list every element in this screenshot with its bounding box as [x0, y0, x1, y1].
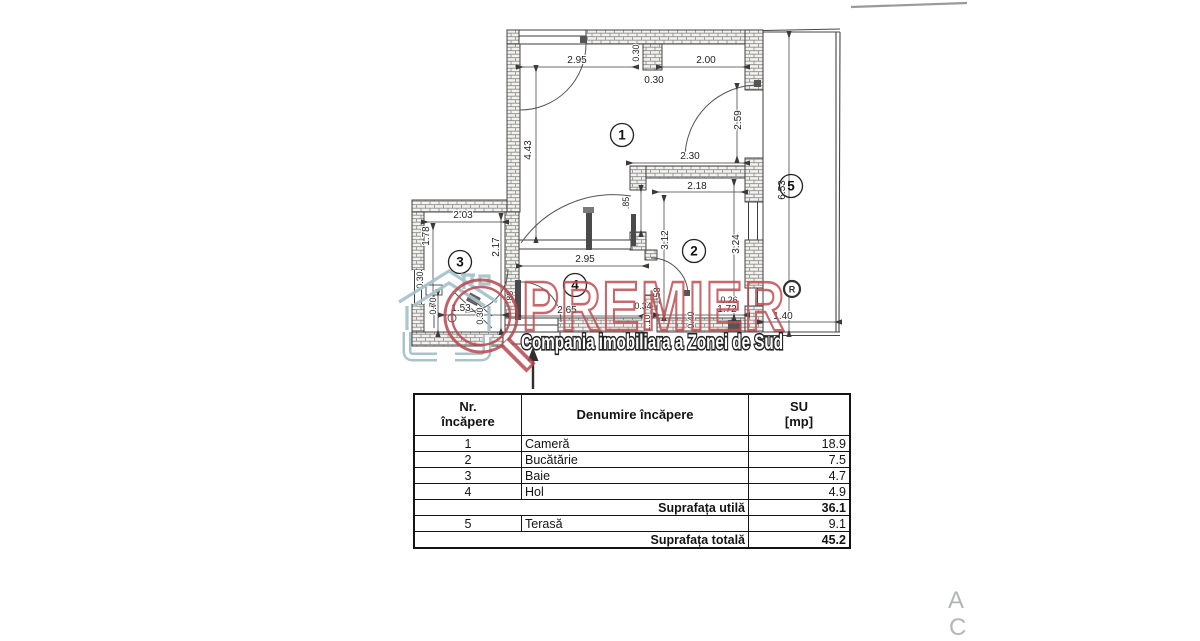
header-nr-line2: încăpere — [418, 415, 518, 430]
cell-nr: 3 — [414, 468, 522, 484]
subtotal-label: Suprafața utilă — [414, 500, 749, 516]
header-nr-line1: Nr. — [418, 400, 518, 415]
room-number-2: 2 — [683, 240, 706, 263]
cell-name: Cameră — [522, 436, 749, 452]
table-row: 1 Cameră 18.9 — [414, 436, 850, 452]
cell-su: 18.9 — [749, 436, 851, 452]
total-label: Suprafața totală — [414, 532, 749, 549]
subtotal-value: 36.1 — [749, 500, 851, 516]
cell-su: 4.7 — [749, 468, 851, 484]
cell-nr: 2 — [414, 452, 522, 468]
dim-label: 0.70 — [428, 297, 438, 314]
table-row: 3 Baie 4.7 — [414, 468, 850, 484]
svg-text:3: 3 — [456, 255, 464, 270]
dim-label: .85 — [621, 197, 631, 209]
dim-label: 0.30 — [644, 75, 664, 86]
dim-label: 0.30 — [631, 44, 641, 61]
dim-label: 2.95 — [575, 254, 595, 265]
cell-name: Bucătărie — [522, 452, 749, 468]
header-nr: Nr. încăpere — [414, 394, 522, 436]
door-arc-room1-hall — [521, 195, 631, 243]
brand-tagline: Compania imobiliara a Zonei de Sud — [521, 330, 783, 354]
scanned-floorplan-page: { "plan": { "rooms": { "r1": "1", "r2": … — [0, 0, 1200, 625]
door-arc-terrace — [685, 85, 758, 158]
faint-corner-letter-c: C — [949, 616, 966, 640]
dim-label: 3.24 — [731, 234, 742, 254]
dim-label: 1.78 — [421, 226, 432, 246]
cell-su: 7.5 — [749, 452, 851, 468]
svg-text:5: 5 — [787, 179, 795, 194]
scan-artifact-line — [851, 3, 967, 7]
table-row: 4 Hol 4.9 — [414, 484, 850, 500]
subtotal-row: Suprafața utilă 36.1 — [414, 500, 850, 516]
area-table: Nr. încăpere Denumire încăpere SU [mp] 1… — [413, 393, 851, 549]
door-arc-room1-top — [520, 44, 586, 110]
cell-name: Hol — [522, 484, 749, 500]
cell-nr: 1 — [414, 436, 522, 452]
header-su-line2: [mp] — [752, 415, 846, 430]
header-su: SU [mp] — [749, 394, 851, 436]
cell-su: 4.9 — [749, 484, 851, 500]
dim-label: 4.43 — [523, 140, 534, 160]
svg-text:R: R — [789, 285, 796, 295]
header-su-line1: SU — [752, 400, 846, 415]
dim-label: 2.95 — [567, 55, 587, 66]
total-row: Suprafața totală 45.2 — [414, 532, 850, 549]
dim-label: 2.03 — [453, 210, 473, 221]
table-row: 2 Bucătărie 7.5 — [414, 452, 850, 468]
total-value: 45.2 — [749, 532, 851, 549]
dim-label: 2.59 — [733, 110, 744, 130]
registered-mark: R — [784, 281, 800, 297]
dim-label: 2.17 — [491, 237, 502, 257]
cell-nr: 5 — [414, 516, 522, 532]
room-number-3: 3 — [449, 251, 472, 274]
svg-text:2: 2 — [690, 244, 698, 259]
dim-label: 2.30 — [680, 151, 700, 162]
dim-label: 3.12 — [660, 230, 671, 250]
svg-text:1: 1 — [618, 128, 626, 143]
table-row: 5 Terasă 9.1 — [414, 516, 850, 532]
cell-nr: 4 — [414, 484, 522, 500]
cell-name: Terasă — [522, 516, 749, 532]
watermark-logo: PREMIER Compania imobiliara a Zonei de S… — [399, 267, 786, 368]
cell-name: Baie — [522, 468, 749, 484]
table-header-row: Nr. încăpere Denumire încăpere SU [mp] — [414, 394, 850, 436]
dim-label: 0.30 — [475, 307, 485, 324]
dim-label: 2.00 — [696, 55, 716, 66]
header-name: Denumire încăpere — [522, 394, 749, 436]
cell-su: 9.1 — [749, 516, 851, 532]
room-number-1: 1 — [611, 124, 634, 147]
faint-corner-letter-a: A — [948, 589, 964, 613]
dim-label: 2.18 — [687, 181, 707, 192]
